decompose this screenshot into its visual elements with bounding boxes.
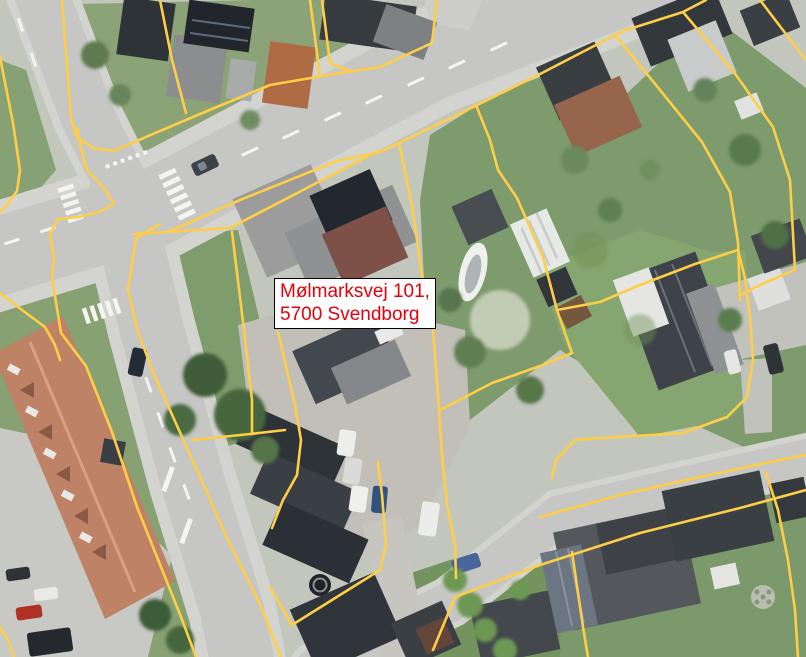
address-line-2: 5700 Svendborg xyxy=(280,303,430,326)
aerial-map[interactable]: Mølmarksvej 101, 5700 Svendborg xyxy=(0,0,806,657)
address-label: Mølmarksvej 101, 5700 Svendborg xyxy=(274,278,436,329)
address-line-1: Mølmarksvej 101, xyxy=(280,280,430,303)
